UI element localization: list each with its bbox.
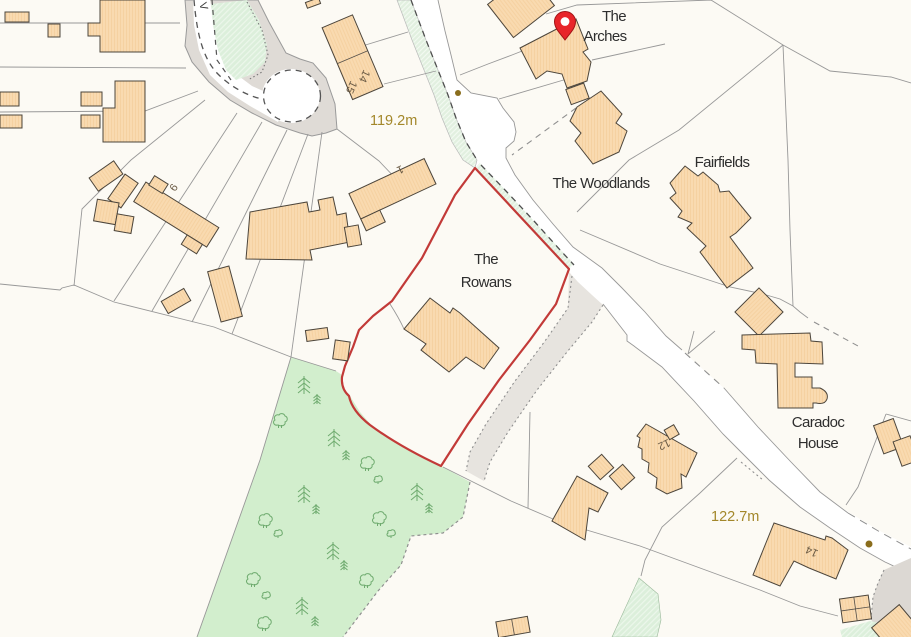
svg-text:The: The: [474, 251, 498, 268]
svg-text:Caradoc: Caradoc: [792, 414, 846, 431]
svg-text:Arches: Arches: [583, 28, 626, 45]
svg-text:Rowans: Rowans: [461, 274, 512, 291]
svg-text:The Woodlands: The Woodlands: [553, 175, 650, 192]
svg-text:House: House: [798, 435, 839, 452]
svg-text:119.2m: 119.2m: [370, 113, 417, 129]
svg-text:The: The: [602, 8, 626, 25]
svg-text:Fairfields: Fairfields: [695, 154, 750, 171]
svg-text:122.7m: 122.7m: [711, 509, 759, 525]
